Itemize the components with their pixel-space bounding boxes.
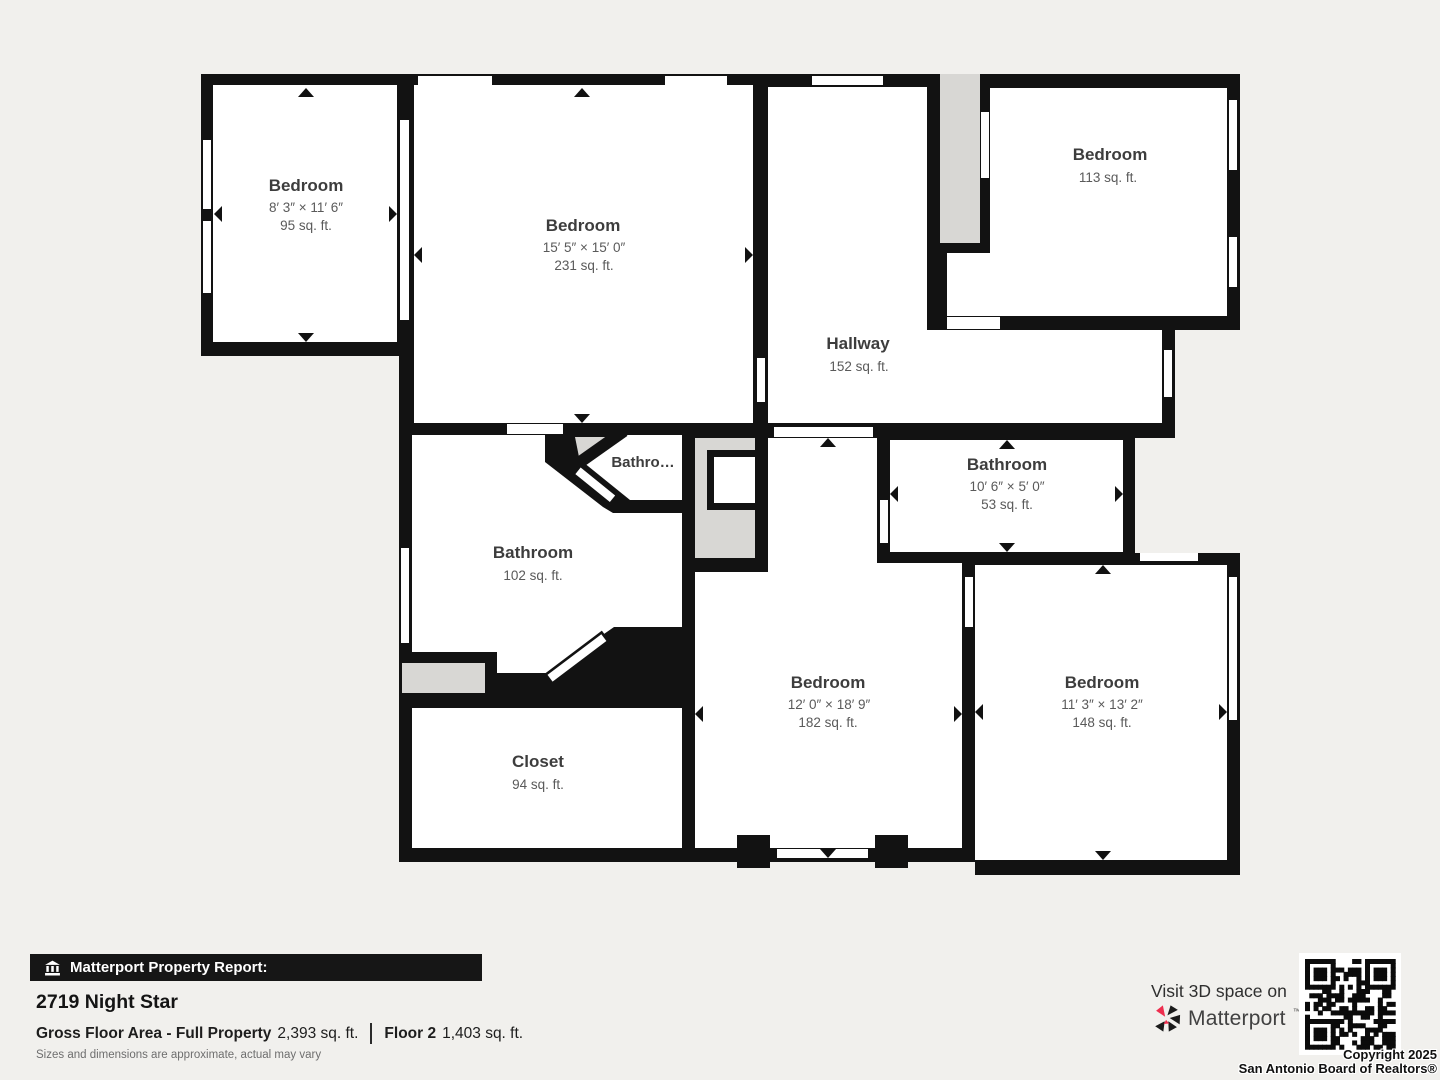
floor-area-line: Gross Floor Area - Full Property 2,393 s…	[36, 1023, 523, 1044]
matterport-pinwheel-icon	[1152, 1004, 1181, 1033]
property-address: 2719 Night Star	[36, 991, 178, 1014]
area-bedroom-top-left: 95 sq. ft.	[280, 218, 332, 233]
gross-floor-area-value: 2,393 sq. ft.	[277, 1025, 358, 1043]
label-bedroom-top-center: Bedroom	[546, 216, 621, 235]
floor-plan: Bedroom 8′ 3″ × 11′ 6″ 95 sq. ft. Bedroo…	[0, 0, 1440, 950]
visit-3d-text: Visit 3D space on	[1151, 981, 1287, 1002]
copyright-year: Copyright 2025	[1343, 1047, 1437, 1062]
label-bedroom-top-right: Bedroom	[1073, 145, 1148, 164]
utility-notch	[714, 457, 755, 503]
qr-code-image	[1299, 953, 1401, 1055]
divider	[370, 1023, 372, 1044]
matterport-logo: Matterport ™	[1152, 1004, 1301, 1033]
chimney-niche	[402, 663, 485, 693]
report-banner-label: Matterport Property Report:	[70, 959, 268, 976]
label-bedroom-bottom-right: Bedroom	[1065, 673, 1140, 692]
disclaimer-text: Sizes and dimensions are approximate, ac…	[36, 1049, 321, 1061]
dims-bedroom-bottom-right: 11′ 3″ × 13′ 2″	[1061, 697, 1143, 712]
qr-code	[1299, 953, 1401, 1055]
gross-floor-area-label: Gross Floor Area - Full Property	[36, 1025, 271, 1043]
area-bedroom-bottom-right: 148 sq. ft.	[1072, 715, 1131, 730]
room-bedroom-bottom-right	[975, 565, 1227, 860]
door-pillar-right	[875, 835, 908, 868]
area-closet: 94 sq. ft.	[512, 777, 564, 792]
area-bedroom-bottom-center: 182 sq. ft.	[798, 715, 857, 730]
dims-bathroom-right: 10′ 6″ × 5′ 0″	[969, 479, 1044, 494]
area-bathroom-right: 53 sq. ft.	[981, 497, 1033, 512]
area-bedroom-top-right: 113 sq. ft.	[1079, 170, 1137, 185]
label-hallway: Hallway	[826, 334, 890, 353]
building-icon	[44, 960, 61, 976]
label-bedroom-bottom-center: Bedroom	[791, 673, 866, 692]
stairwell-area	[940, 74, 980, 243]
door-pillar-left	[737, 835, 770, 868]
area-hallway: 152 sq. ft.	[829, 359, 888, 374]
floor-value: 1,403 sq. ft.	[442, 1025, 523, 1043]
matterport-wordmark: Matterport	[1188, 1007, 1286, 1031]
area-bathroom-left: 102 sq. ft.	[503, 568, 562, 583]
label-bathroom-small: Bathro…	[611, 454, 674, 471]
dims-bedroom-bottom-center: 12′ 0″ × 18′ 9″	[788, 697, 871, 712]
dims-bedroom-top-center: 15′ 5″ × 15′ 0″	[543, 240, 626, 255]
copyright-owner: San Antonio Board of Realtors®	[1239, 1061, 1437, 1076]
label-closet: Closet	[512, 752, 564, 771]
label-bathroom-left: Bathroom	[493, 543, 573, 562]
report-banner: Matterport Property Report:	[30, 954, 482, 981]
label-bedroom-top-left: Bedroom	[269, 176, 344, 195]
label-bathroom-right: Bathroom	[967, 455, 1047, 474]
area-bedroom-top-center: 231 sq. ft.	[554, 258, 613, 273]
floor-label: Floor 2	[384, 1025, 436, 1043]
dims-bedroom-top-left: 8′ 3″ × 11′ 6″	[269, 200, 343, 215]
